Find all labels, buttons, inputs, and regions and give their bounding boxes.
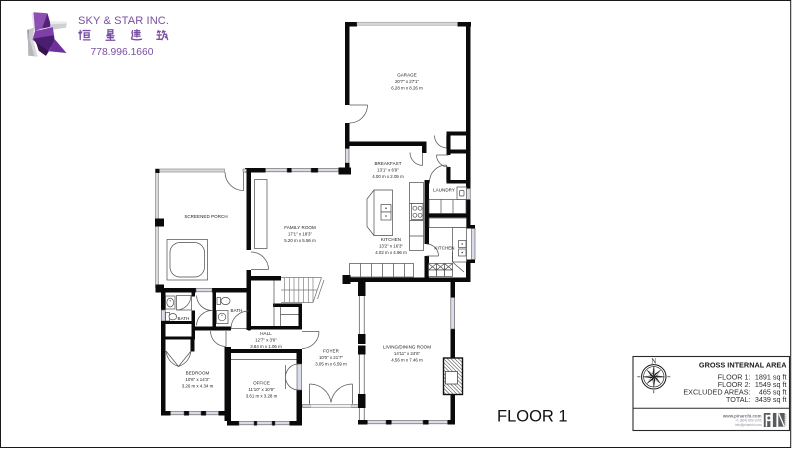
svg-text:4.00 m x 2.05 m: 4.00 m x 2.05 m <box>372 174 404 179</box>
svg-text:LIVING/DINING ROOM: LIVING/DINING ROOM <box>383 345 431 350</box>
svg-text:3.84 m x 1.06 m: 3.84 m x 1.06 m <box>250 344 282 349</box>
svg-text:17'1" x 18'3": 17'1" x 18'3" <box>288 232 313 237</box>
svg-text:HALL: HALL <box>260 331 272 336</box>
svg-text:BATH: BATH <box>231 308 243 313</box>
svg-text:12'7" x 3'6": 12'7" x 3'6" <box>255 337 277 342</box>
svg-text:10'0" x 21'7": 10'0" x 21'7" <box>319 355 344 360</box>
svg-text:14'11" x 24'6": 14'11" x 24'6" <box>394 351 421 356</box>
svg-text:13'1" x 6'9": 13'1" x 6'9" <box>377 167 399 172</box>
svg-text:info@pinarchi.com: info@pinarchi.com <box>735 423 762 427</box>
svg-text:4.56 m x 7.46 m: 4.56 m x 7.46 m <box>391 358 423 363</box>
svg-text:FAMILY ROOM: FAMILY ROOM <box>284 225 316 230</box>
svg-text:KITCHEN: KITCHEN <box>434 245 454 250</box>
svg-text:SKY & STAR INC.: SKY & STAR INC. <box>78 15 169 27</box>
svg-text:TOTAL:: TOTAL: <box>726 395 751 404</box>
svg-text:BREAKFAST: BREAKFAST <box>374 161 401 166</box>
svg-text:BATH: BATH <box>178 316 190 321</box>
svg-text:www.pinarchi.com: www.pinarchi.com <box>722 413 762 418</box>
svg-text:LAUNDRY: LAUNDRY <box>433 188 455 193</box>
svg-text:3439 sq ft: 3439 sq ft <box>755 395 787 404</box>
svg-text:3.61 m x 3.28 m: 3.61 m x 3.28 m <box>246 394 278 399</box>
svg-text:SCREENED PORCH: SCREENED PORCH <box>184 214 227 219</box>
svg-text:4.02 m x 4.96 m: 4.02 m x 4.96 m <box>375 250 407 255</box>
svg-text:20'7" x 27'1": 20'7" x 27'1" <box>395 79 420 84</box>
svg-text:3.26 m x 4.34 m: 3.26 m x 4.34 m <box>182 383 214 388</box>
svg-text:BEDROOM: BEDROOM <box>186 370 210 375</box>
svg-text:GARAGE: GARAGE <box>397 73 417 78</box>
svg-text:11'10" x 10'9": 11'10" x 10'9" <box>248 387 275 392</box>
svg-text:13'2" x 16'3": 13'2" x 16'3" <box>379 243 404 248</box>
svg-text:OFFICE: OFFICE <box>253 381 270 386</box>
svg-text:5.20 m x 5.56 m: 5.20 m x 5.56 m <box>284 238 316 243</box>
svg-text:GROSS INTERNAL AREA: GROSS INTERNAL AREA <box>699 361 787 370</box>
svg-text:FLOOR 1: FLOOR 1 <box>497 408 568 426</box>
svg-text:FOYER: FOYER <box>323 349 339 354</box>
svg-text:3.05 m x 6.59 m: 3.05 m x 6.59 m <box>315 362 347 367</box>
svg-text:N: N <box>651 358 656 366</box>
svg-text:10'8" x 14'3": 10'8" x 14'3" <box>185 377 210 382</box>
svg-text:KITCHEN: KITCHEN <box>381 237 401 242</box>
svg-text:778.996.1660: 778.996.1660 <box>91 47 154 58</box>
svg-text:6.28 m x 8.26 m: 6.28 m x 8.26 m <box>391 86 423 91</box>
